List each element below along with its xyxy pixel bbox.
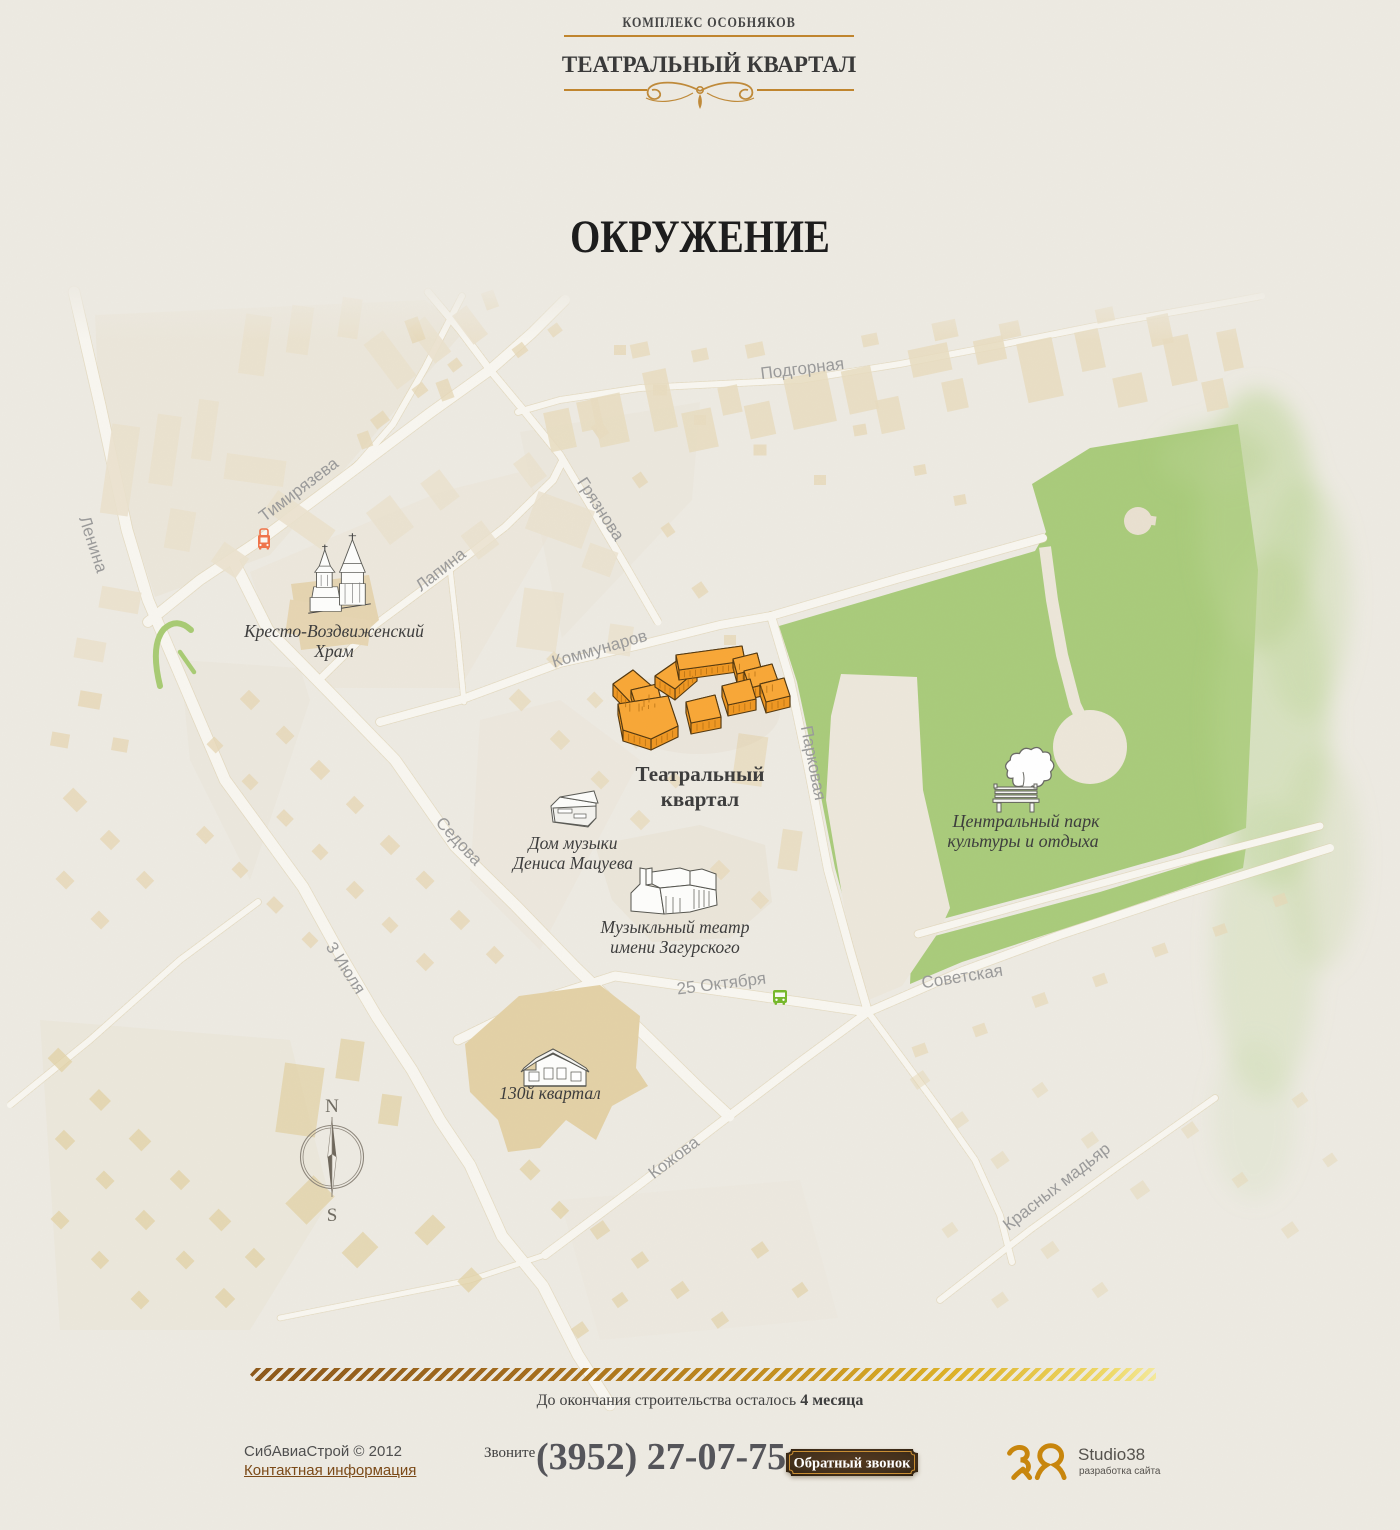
svg-text:Studio38: Studio38 [1078,1445,1145,1464]
svg-text:разработка сайта: разработка сайта [1079,1465,1161,1477]
svg-text:Обратный звонок: Обратный звонок [793,1456,911,1472]
